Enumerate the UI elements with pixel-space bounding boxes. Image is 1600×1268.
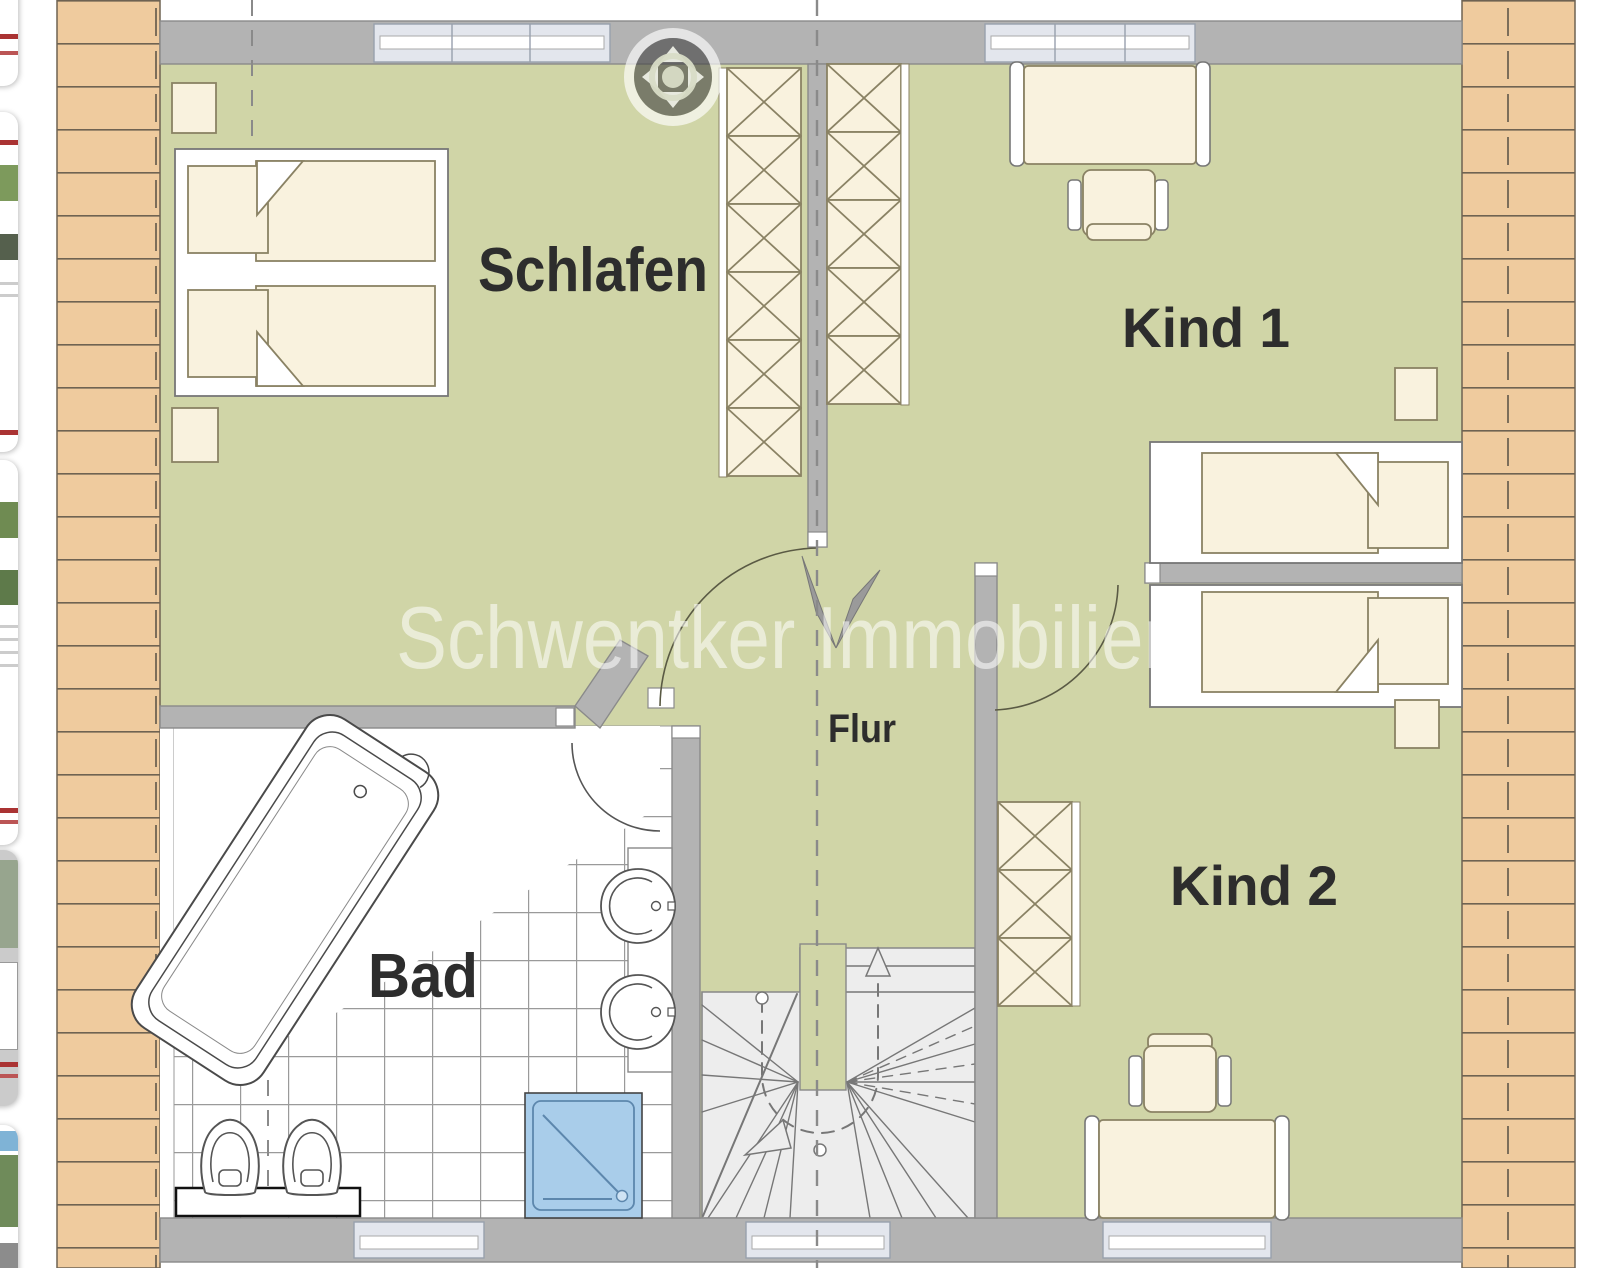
toilet (201, 1120, 259, 1195)
bed-kind2 (1150, 585, 1462, 707)
wall-bad-flur (672, 726, 700, 1218)
floorplan-viewer: Schlafen Kind 1 Kind 2 Bad Flur Schwentk… (0, 0, 1600, 1268)
wall-bad-top (160, 706, 575, 728)
sink (601, 869, 675, 943)
room-label-bad: Bad (368, 942, 478, 1011)
thumbnail-photo (0, 570, 18, 605)
thumbnail-card[interactable] (0, 1125, 18, 1268)
wall-top (160, 21, 1462, 64)
window-schlafen (374, 24, 610, 62)
thumbnail-card[interactable] (0, 0, 18, 86)
brick-wall-left (57, 0, 160, 1268)
floorplan-image[interactable]: Schlafen Kind 1 Kind 2 Bad Flur Schwentk… (0, 0, 1600, 1268)
nightstand (172, 408, 218, 462)
window-kind2 (1103, 1222, 1271, 1258)
pan-control[interactable] (629, 33, 717, 121)
wardrobe-kind2 (998, 802, 1080, 1006)
wardrobe-kind1 (827, 64, 909, 405)
toilet (283, 1120, 341, 1195)
room-label-kind2: Kind 2 (1170, 854, 1338, 917)
wall-kind1-kind2 (1145, 563, 1462, 583)
thumbnail-photo (0, 1131, 18, 1151)
room-label-flur: Flur (828, 707, 896, 751)
room-label-schlafen: Schlafen (478, 236, 708, 305)
shower-tray (525, 1093, 642, 1218)
window-bad (354, 1222, 484, 1258)
window-kind1 (985, 24, 1195, 62)
nightstand (1395, 368, 1437, 420)
bed-double (175, 149, 448, 396)
thumbnail-card[interactable] (0, 112, 18, 452)
thumbnail-rail (0, 0, 57, 1268)
nightstand (1395, 700, 1439, 748)
nightstand (172, 83, 216, 133)
thumbnail-card[interactable] (0, 850, 18, 1106)
desk-kind1 (1010, 62, 1210, 166)
thumbnail-photo (0, 1155, 18, 1227)
chair-kind1 (1068, 170, 1168, 240)
watermark: Schwentker Immobilien (396, 588, 1186, 687)
bed-kind1 (1150, 442, 1462, 563)
wardrobe-schlafen (719, 68, 801, 477)
room-label-kind1: Kind 1 (1122, 296, 1290, 359)
desk-kind2 (1085, 1116, 1289, 1220)
thumbnail-photo (0, 860, 18, 948)
thumbnail-photo (0, 502, 18, 538)
thumbnail-photo (0, 165, 18, 201)
thumbnail-card[interactable] (0, 460, 18, 845)
thumbnail-photo (0, 234, 18, 260)
sink (601, 975, 675, 1049)
thumbnail-photo (0, 1243, 18, 1268)
brick-wall-right (1462, 0, 1575, 1268)
